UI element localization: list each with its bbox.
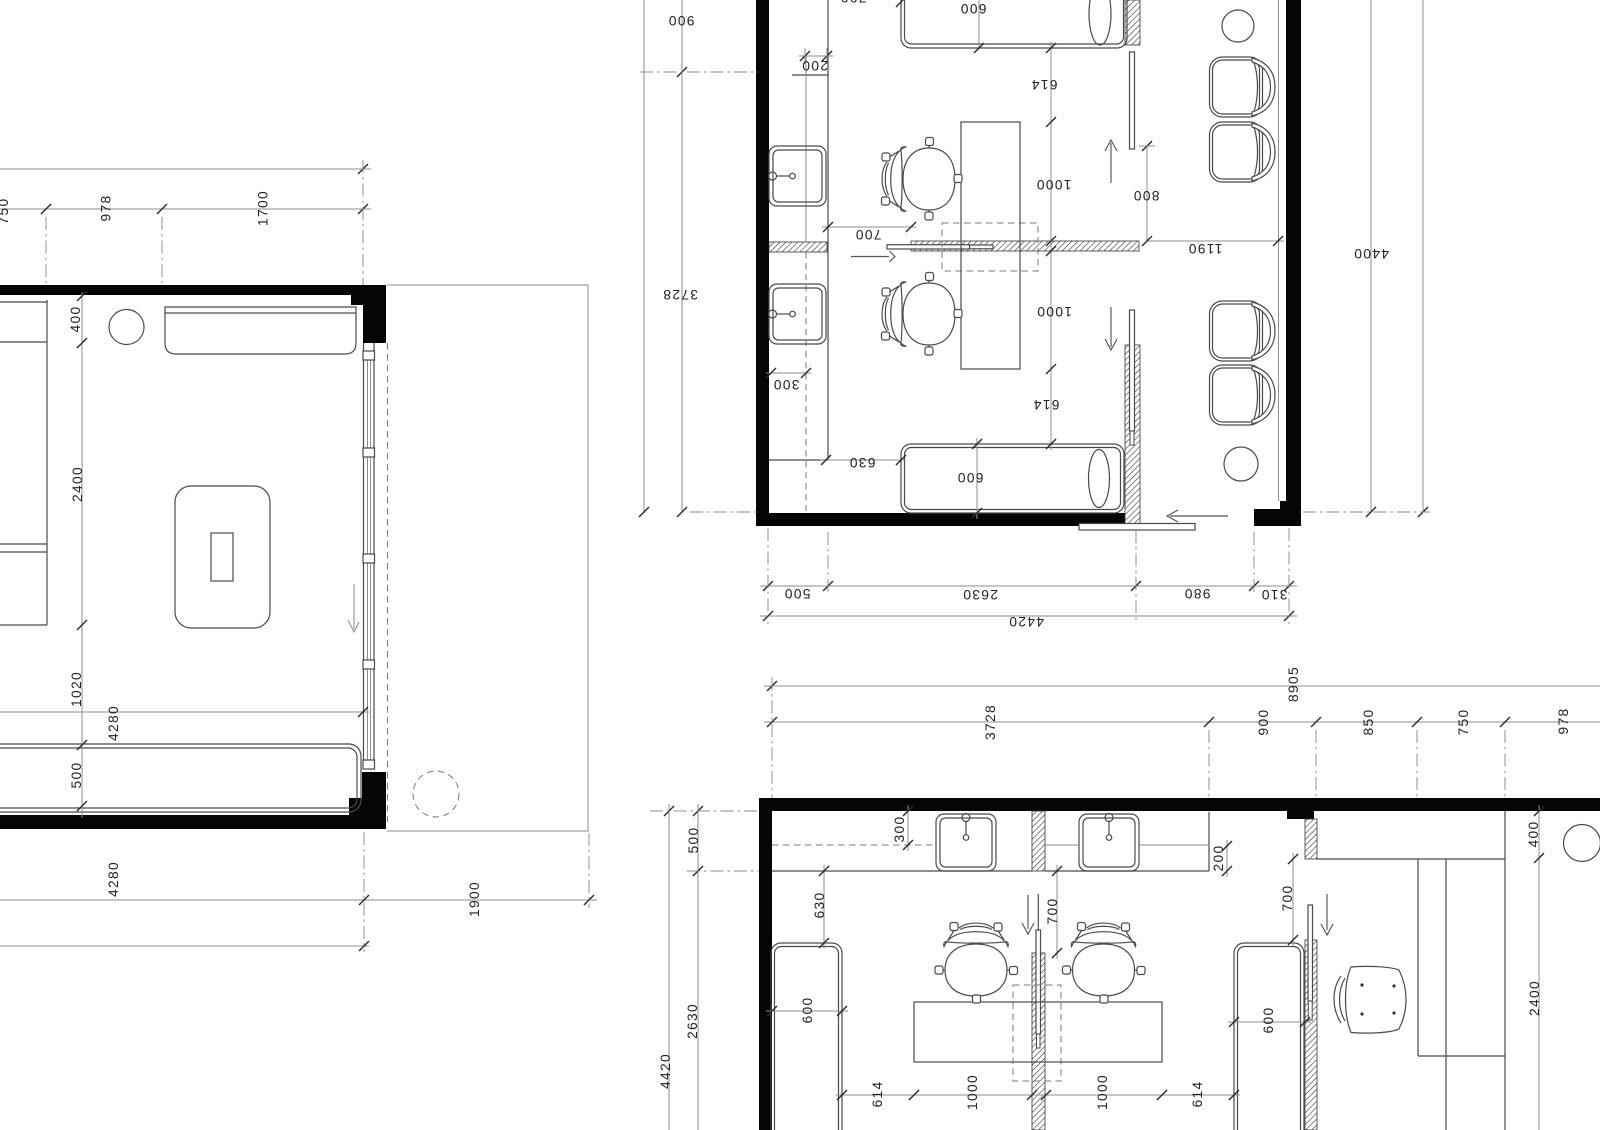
svg-text:614: 614 xyxy=(870,1081,885,1108)
svg-text:200: 200 xyxy=(801,58,828,73)
svg-text:700: 700 xyxy=(855,227,882,242)
svg-text:800: 800 xyxy=(1133,188,1160,203)
svg-text:300: 300 xyxy=(773,377,800,392)
svg-text:750: 750 xyxy=(0,198,11,225)
svg-text:1000: 1000 xyxy=(1036,177,1072,192)
svg-text:4400: 4400 xyxy=(1353,246,1389,261)
svg-text:700: 700 xyxy=(840,0,867,5)
svg-text:614: 614 xyxy=(1033,397,1060,412)
svg-text:300: 300 xyxy=(892,816,907,843)
svg-text:3728: 3728 xyxy=(983,704,998,740)
svg-text:600: 600 xyxy=(957,470,984,485)
svg-text:700: 700 xyxy=(1045,898,1060,925)
svg-text:4280: 4280 xyxy=(106,705,121,741)
svg-text:1900: 1900 xyxy=(467,881,482,917)
svg-text:600: 600 xyxy=(800,997,815,1024)
svg-text:600: 600 xyxy=(1261,1007,1276,1034)
svg-text:978: 978 xyxy=(98,195,113,222)
svg-text:500: 500 xyxy=(69,762,84,789)
svg-text:630: 630 xyxy=(849,455,876,470)
svg-text:8905: 8905 xyxy=(1286,666,1301,702)
svg-text:1020: 1020 xyxy=(69,671,84,707)
svg-text:700: 700 xyxy=(1280,885,1295,912)
svg-text:400: 400 xyxy=(68,306,83,333)
svg-text:400: 400 xyxy=(1526,821,1541,848)
svg-text:2400: 2400 xyxy=(1527,980,1542,1016)
svg-text:978: 978 xyxy=(1556,708,1571,735)
svg-text:200: 200 xyxy=(1211,845,1226,872)
svg-text:2630: 2630 xyxy=(685,1003,700,1039)
svg-text:2630: 2630 xyxy=(962,587,998,602)
svg-text:630: 630 xyxy=(812,892,827,919)
svg-text:3728: 3728 xyxy=(662,287,698,302)
svg-text:500: 500 xyxy=(686,827,701,854)
svg-text:1190: 1190 xyxy=(1188,241,1223,256)
svg-text:2400: 2400 xyxy=(70,466,85,502)
svg-text:614: 614 xyxy=(1031,77,1058,92)
svg-text:310: 310 xyxy=(1261,587,1288,602)
svg-text:1700: 1700 xyxy=(255,190,270,226)
svg-text:980: 980 xyxy=(1184,586,1211,601)
svg-text:500: 500 xyxy=(784,586,811,601)
svg-text:1000: 1000 xyxy=(965,1074,980,1110)
svg-text:600: 600 xyxy=(960,1,987,16)
svg-text:1000: 1000 xyxy=(1036,304,1072,319)
svg-text:4280: 4280 xyxy=(106,861,121,897)
svg-text:850: 850 xyxy=(1361,709,1376,736)
svg-text:1000: 1000 xyxy=(1095,1074,1110,1110)
svg-text:900: 900 xyxy=(1256,709,1271,736)
svg-text:4420: 4420 xyxy=(658,1053,673,1089)
svg-text:750: 750 xyxy=(1456,709,1471,736)
svg-text:900: 900 xyxy=(668,13,695,28)
svg-text:614: 614 xyxy=(1190,1081,1205,1108)
svg-text:4420: 4420 xyxy=(1008,614,1044,629)
